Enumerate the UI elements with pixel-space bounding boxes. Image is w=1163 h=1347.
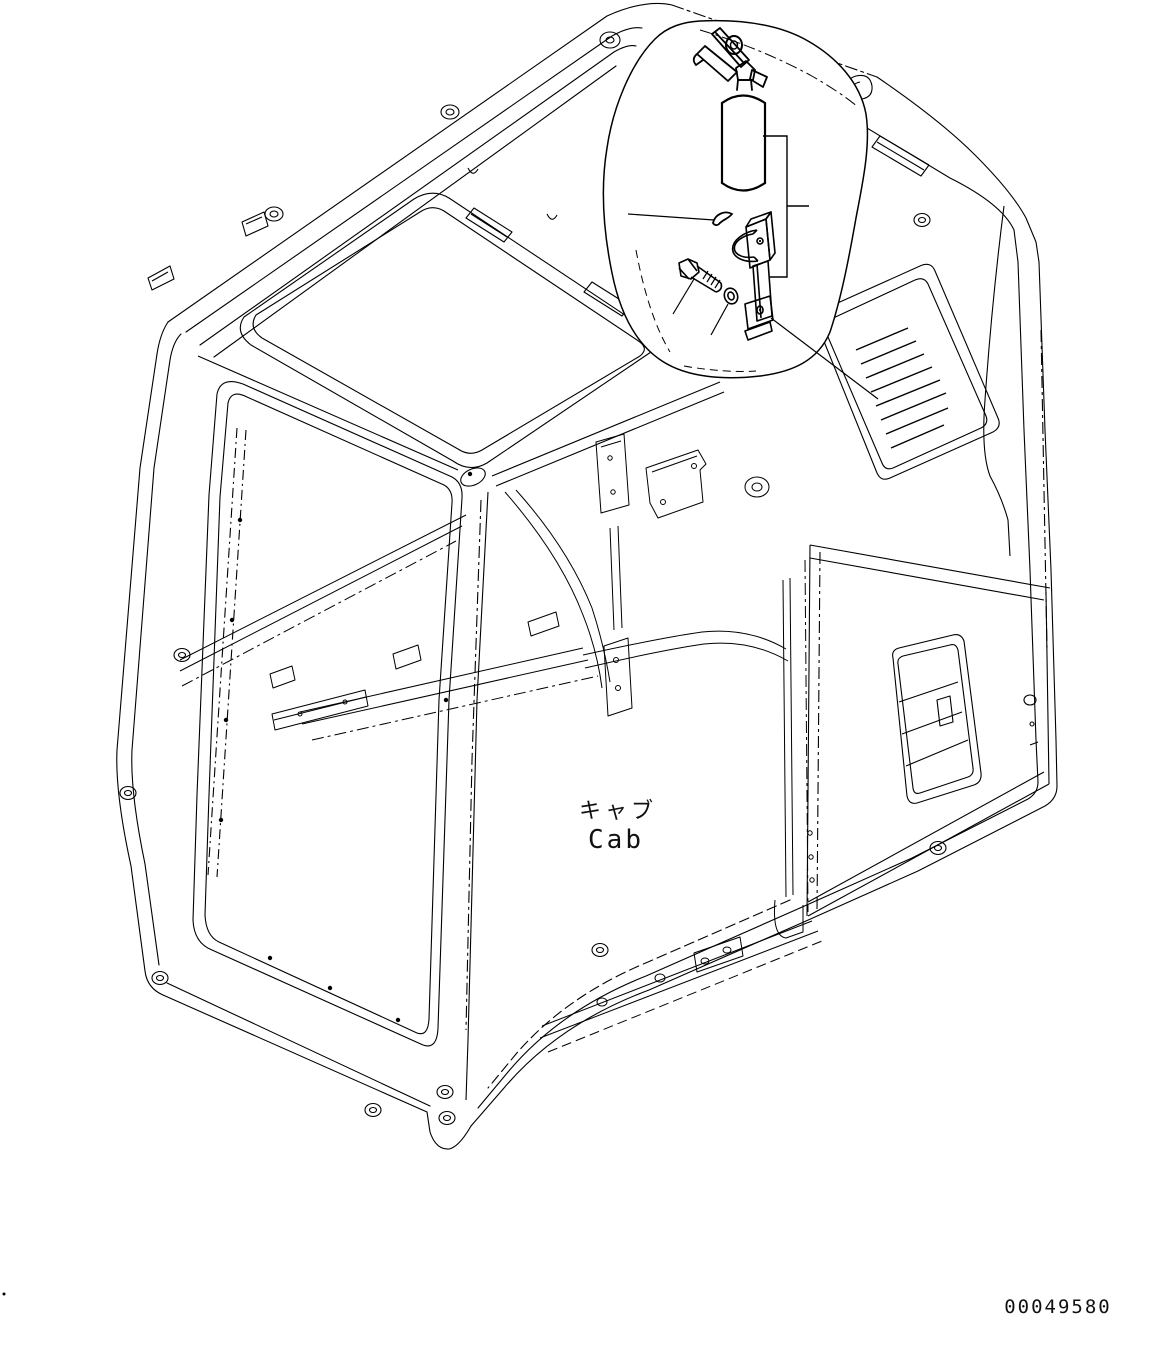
right-side-panels <box>807 206 1050 916</box>
roof-bolt <box>441 105 459 119</box>
frame-rivets <box>219 518 448 1022</box>
cab-frame <box>117 3 1057 1149</box>
roof-bolt <box>265 207 283 221</box>
detail-balloon <box>603 21 878 399</box>
cab-interior <box>180 434 822 1052</box>
drawing-number: 00049580 <box>1004 1296 1112 1318</box>
rubber-mounts <box>120 214 946 1117</box>
roof-skylight <box>198 193 657 470</box>
side-panel <box>807 545 1050 916</box>
front-right-pillar <box>437 382 724 1125</box>
cab-label-en: Cab <box>588 825 644 855</box>
cab-label-ja: キャブ <box>579 799 657 824</box>
windshield-frame <box>193 382 462 1046</box>
diagram-sheet: キャブ Cab 00049580 <box>0 0 1163 1347</box>
roof-bolt <box>600 32 620 48</box>
stray-mark <box>3 1293 6 1296</box>
cab-diagram: キャブ Cab 00049580 <box>0 0 1163 1347</box>
rear-window <box>816 264 999 479</box>
